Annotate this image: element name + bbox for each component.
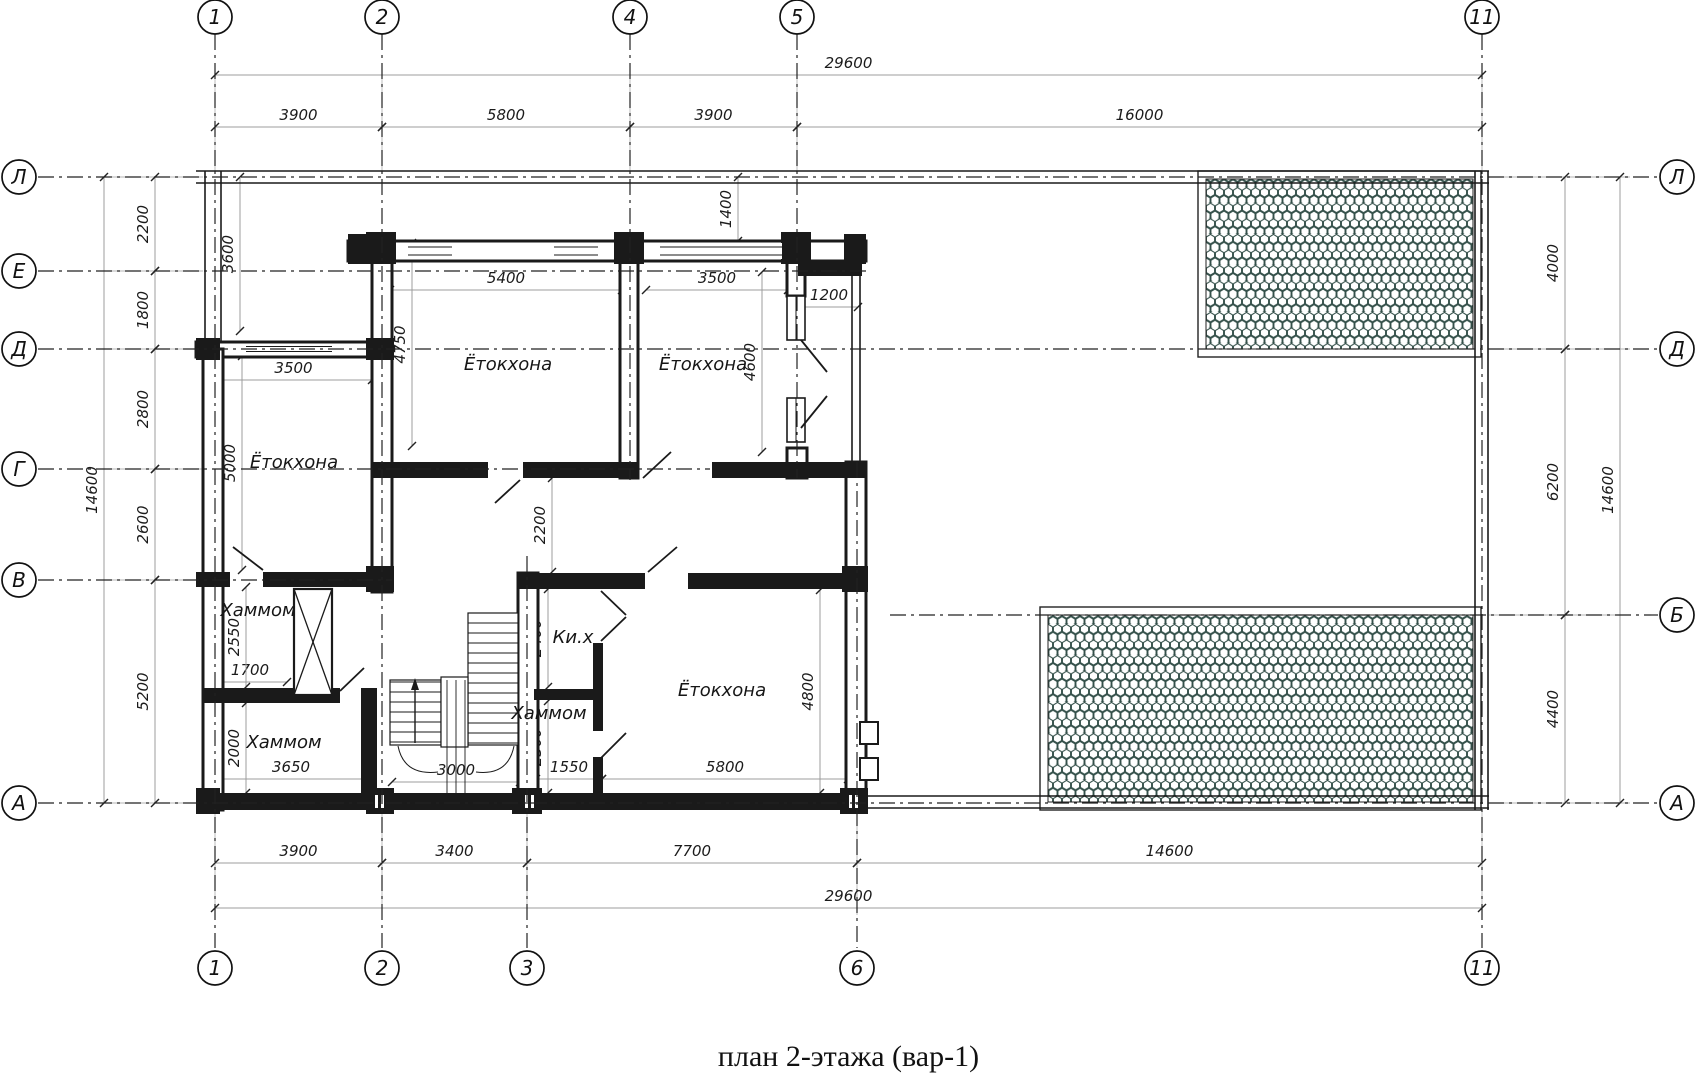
terrace-hatch	[1048, 615, 1473, 802]
dimension-label: 2200	[531, 506, 549, 544]
room-label: Ётокхона	[678, 680, 766, 701]
dimension-label: 2600	[134, 505, 152, 543]
dimension-label: 29600	[825, 54, 873, 72]
dimension-label: 5200	[134, 672, 152, 710]
dimension-label: 1800	[134, 291, 152, 329]
dimension-label: 11	[1469, 5, 1494, 29]
dimension-label: 5400	[487, 269, 525, 287]
dimension-label: 4	[624, 5, 637, 29]
dimension-label: 3900	[694, 106, 732, 124]
room-label: Ётокхона	[464, 354, 552, 375]
dimension-label: 1	[209, 956, 222, 980]
dimension-label: В	[12, 568, 26, 592]
dimension-label: 3900	[279, 106, 317, 124]
dimension-label: 16000	[1116, 106, 1164, 124]
dimension-label: Л	[1668, 165, 1684, 189]
dimension-label: 3500	[274, 359, 312, 377]
axis-bubble-Д: Д	[1660, 332, 1694, 366]
dimension-label: 11	[1469, 956, 1494, 980]
axis-bubble-Е: Е	[2, 254, 36, 288]
dimension-label: 1400	[717, 190, 735, 228]
dimension-label: 5	[791, 5, 804, 29]
dimension-label: 6200	[1544, 463, 1562, 501]
axis-bubble-Л: Л	[1660, 160, 1694, 194]
dimension-label: 4800	[799, 672, 817, 710]
axis-bubble-4: 4	[613, 0, 647, 34]
axis-bubble-Д: Д	[2, 332, 36, 366]
dimension-label: Г	[13, 457, 26, 481]
dimension-label: Е	[13, 259, 26, 283]
room-label: Хаммом	[510, 703, 586, 724]
dimension-label: 2800	[134, 390, 152, 428]
axis-bubble-6: 6	[840, 951, 874, 985]
dimension-label: 1200	[810, 286, 848, 304]
plan-title: план 2-этажа (вар-1)	[0, 1040, 1697, 1074]
axis-bubble-11: 11	[1465, 951, 1499, 985]
axis-bubble-Б: Б	[1660, 598, 1694, 632]
axis-bubble-11: 11	[1465, 0, 1499, 34]
dimension-label: 1550	[550, 758, 588, 776]
dimension-label: 5800	[706, 758, 744, 776]
dimension-label: 6	[851, 956, 864, 980]
dimension-label: 29600	[825, 887, 873, 905]
drawing-sheet: 2960039005800390016000390034007700146002…	[0, 0, 1697, 1080]
room-label: Ки.х	[553, 627, 594, 648]
dimension-label: 14600	[1146, 842, 1194, 860]
axis-bubble-5: 5	[780, 0, 814, 34]
room-label: Ётокхона	[250, 452, 338, 473]
dimension-label: 5800	[487, 106, 525, 124]
dimension-label: 4400	[1544, 690, 1562, 728]
floor-plan-svg: 2960039005800390016000390034007700146002…	[0, 0, 1697, 1080]
room-label: Ётокхона	[659, 354, 747, 375]
dimension-label: Б	[1670, 603, 1684, 627]
axis-bubble-3: 3	[510, 951, 544, 985]
dimension-label: 2200	[134, 205, 152, 243]
axis-bubble-А: А	[1660, 786, 1694, 820]
dimension-label: 3900	[279, 842, 317, 860]
axis-bubble-А: А	[2, 786, 36, 820]
room-label: Хаммом	[245, 732, 321, 753]
terraces	[1040, 171, 1481, 810]
dimension-label: А	[1668, 791, 1684, 815]
axis-bubble-В: В	[2, 563, 36, 597]
dimension-label: 1	[209, 5, 222, 29]
terrace-hatch	[1206, 179, 1473, 349]
dimension-label: Л	[10, 165, 26, 189]
dimension-label: 1700	[231, 661, 269, 679]
dimension-label: 7700	[673, 842, 711, 860]
dimension-label: 3650	[272, 758, 310, 776]
axis-bubble-1: 1	[198, 0, 232, 34]
dimension-label: 2	[376, 5, 389, 29]
dimension-label: 3	[521, 956, 534, 980]
axis-bubble-Г: Г	[2, 452, 36, 486]
dimension-label: 4000	[1544, 244, 1562, 282]
dimension-label: 14600	[1599, 466, 1617, 514]
room-label: Хаммом	[219, 600, 295, 621]
axis-bubble-Л: Л	[2, 160, 36, 194]
axis-bubble-2: 2	[365, 951, 399, 985]
dimension-label: 2	[376, 956, 389, 980]
dimension-label: 2000	[225, 729, 243, 767]
dimension-label: Д	[10, 337, 27, 361]
dimension-label: 2550	[225, 618, 243, 656]
axis-bubble-2: 2	[365, 0, 399, 34]
dimension-label: Д	[1668, 337, 1685, 361]
axis-bubble-1: 1	[198, 951, 232, 985]
dimension-label: 3400	[435, 842, 473, 860]
dimension-label: 3500	[698, 269, 736, 287]
dimension-label: А	[10, 791, 26, 815]
dimension-label: 14600	[83, 466, 101, 514]
